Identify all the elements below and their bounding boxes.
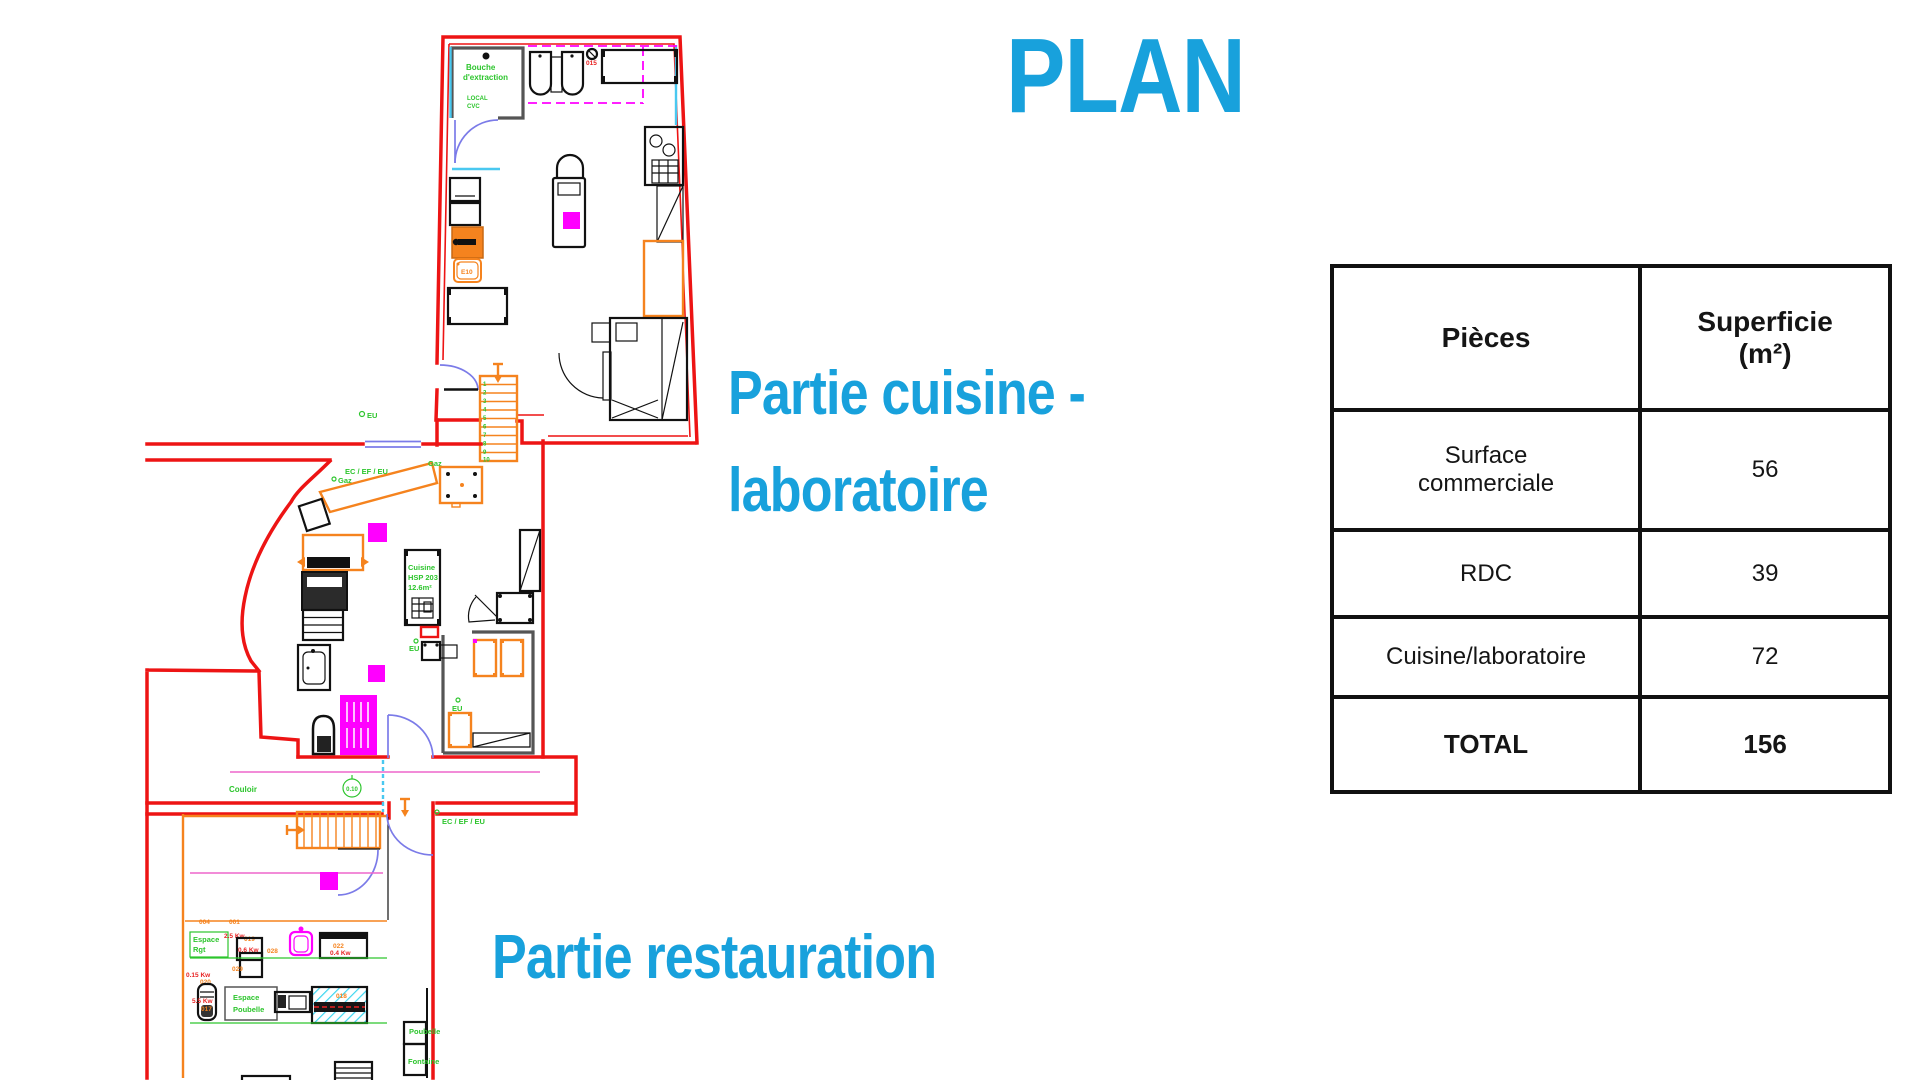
chair (500, 639, 524, 677)
plan-label: 018 (336, 993, 347, 1000)
plan-label: 029 (232, 966, 243, 973)
staircase-top: 1 2 3 4 5 6 7 8 9 10 (480, 364, 517, 464)
plan-label: 004 (199, 919, 210, 926)
plan-label: 015 (586, 60, 597, 67)
plan-label: E10 (461, 269, 473, 276)
plan-label: Bouche (466, 63, 496, 72)
cuisine-table: Cuisine HSP 203 12.6m² (405, 550, 440, 625)
prep-table (448, 288, 507, 324)
sink-e10: E10 (452, 227, 483, 282)
plan-label: HSP 203 (408, 573, 438, 582)
table-row: RDC 39 (1332, 530, 1890, 617)
stair-num: 10 (483, 458, 490, 464)
plan-bottom-section: EC / EF / EU 004 001 Espace Rgt 2.5 Kw 0… (183, 799, 485, 1080)
plan-label: Poubelle (409, 1027, 440, 1036)
magenta-marker (368, 665, 385, 682)
display-counter: 018 (312, 987, 367, 1023)
col-header-superficie: Superficie (m²) (1640, 266, 1890, 410)
cell-piece: RDC (1332, 530, 1640, 617)
plan-label: 12.6m² (408, 583, 432, 592)
magenta-cabinet (340, 695, 377, 755)
plan-label: 001 (229, 919, 240, 926)
plan-label: LOCAL (467, 96, 488, 102)
label-restauration: Partie restauration (492, 922, 936, 993)
cell-area: 72 (1640, 617, 1890, 697)
label-cuisine-line1: Partie cuisine - (728, 345, 1085, 442)
plan-label: CVC (467, 104, 480, 110)
espace-poubelle (225, 987, 277, 1020)
chair (473, 639, 497, 677)
plan-label: EU (452, 704, 462, 713)
equipment-micro (275, 992, 310, 1012)
basin (290, 927, 312, 956)
door-arc (387, 814, 433, 855)
plan-label: EU (409, 644, 419, 653)
plan-label: EC / EF / EU (442, 817, 485, 826)
plan-label: 028 (267, 948, 278, 955)
plan-label: d'extraction (463, 73, 508, 82)
col-header-pieces: Pièces (1332, 266, 1640, 410)
plan-label: EU (367, 411, 377, 420)
label-cuisine-line2: laboratoire (728, 442, 1085, 539)
plan-label: Fontaine (408, 1057, 439, 1066)
door-arc (388, 715, 433, 758)
plan-label: 0.15 Kw (186, 972, 211, 979)
magenta-marker (563, 212, 580, 229)
plan-label: 0.10 (346, 787, 358, 793)
plan-label: 5.5 Kw (192, 998, 214, 1005)
cell-area-total: 156 (1640, 697, 1890, 792)
equipment-box (497, 593, 533, 623)
plan-label: Couloir (229, 785, 257, 794)
table-row: Surface commerciale 56 (1332, 410, 1890, 530)
cell-piece: Cuisine/laboratoire (1332, 617, 1640, 697)
plan-label: Cuisine (408, 563, 435, 572)
slide: Bouche d'extraction LOCAL CVC 015 (0, 0, 1920, 1080)
cell-area: 56 (1640, 410, 1890, 530)
area-table: Pièces Superficie (m²) Surface commercia… (1330, 264, 1892, 794)
extraction-dot (483, 53, 490, 60)
grill (335, 1062, 372, 1080)
staircase-bottom (287, 812, 380, 848)
plan-label: Rgt (193, 945, 206, 954)
table-row: Cuisine/laboratoire 72 (1332, 617, 1890, 697)
plan-label: Poubelle (233, 1005, 264, 1014)
cell-piece-total: TOTAL (1332, 697, 1640, 792)
trolley (553, 155, 585, 247)
cold-room (559, 318, 687, 420)
plan-label: Gaz (338, 476, 352, 485)
cell-piece: Surface commerciale (1332, 410, 1640, 530)
plan-top-room: Bouche d'extraction LOCAL CVC 015 (360, 37, 698, 464)
plan-label: EC / EF / EU (345, 467, 388, 476)
table-header-row: Pièces Superficie (m²) (1332, 266, 1890, 410)
plan-label: Espace (193, 935, 219, 944)
plan-label: 0.4 Kw (330, 950, 352, 957)
plan-label: Espace (233, 993, 259, 1002)
label-cuisine-laboratoire: Partie cuisine - laboratoire (728, 345, 1085, 539)
plan-label: 022 (333, 943, 344, 950)
magenta-marker (320, 872, 338, 890)
door-arc (440, 365, 478, 390)
magenta-marker (368, 523, 387, 542)
wc-room: EU (422, 632, 533, 753)
plan-label: 017 (201, 1006, 212, 1013)
page-title: PLAN (1006, 16, 1245, 137)
cell-area: 39 (1640, 530, 1890, 617)
equipment-022: 022 0.4 Kw (320, 933, 367, 958)
chair (448, 712, 472, 748)
orange-counter (644, 241, 683, 316)
table-row-total: TOTAL 156 (1332, 697, 1890, 792)
work-table (602, 50, 677, 83)
